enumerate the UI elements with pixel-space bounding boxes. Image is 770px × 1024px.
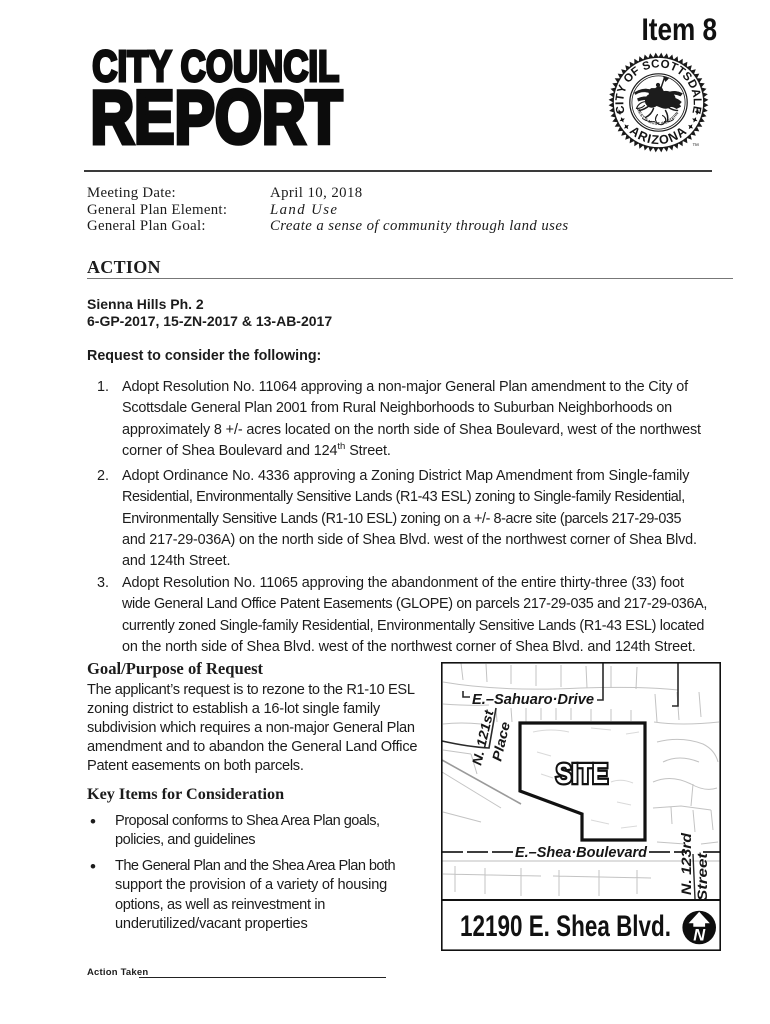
svg-text:REPORT: REPORT (91, 75, 343, 154)
svg-text:12190 E. Shea Blvd.: 12190 E. Shea Blvd. (460, 910, 671, 943)
svg-text:E.–Sahuaro·Drive: E.–Sahuaro·Drive (472, 692, 594, 708)
svg-text:N: N (693, 927, 706, 945)
svg-text:SITE: SITE (556, 758, 608, 789)
svg-text:Street: Street (695, 852, 710, 901)
svg-text:E.–Shea·Boulevard: E.–Shea·Boulevard (515, 845, 648, 861)
svg-text:™: ™ (692, 143, 699, 150)
svg-text:N. 123rd: N. 123rd (679, 832, 694, 895)
